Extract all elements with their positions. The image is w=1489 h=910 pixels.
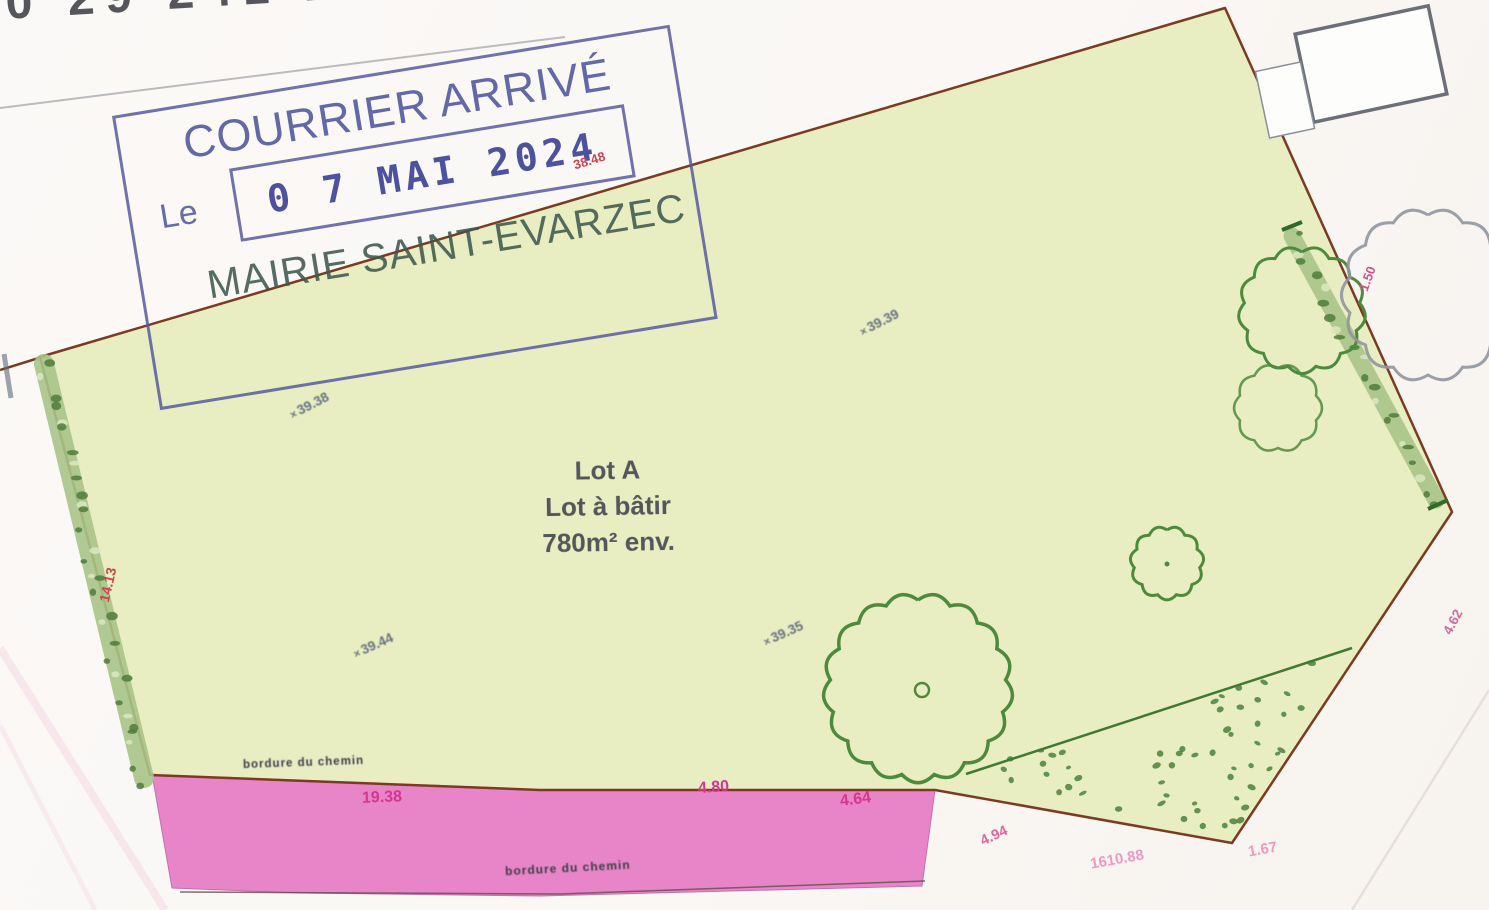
lot-area: 780m² env. [488, 522, 729, 562]
lot-subtitle: Lot à bâtir [488, 486, 729, 526]
road-measurement-2: 4.80 [697, 778, 729, 798]
lot-title: Lot A [487, 450, 728, 490]
edge-mark [4, 354, 11, 398]
road-measurement-1: 19.38 [362, 788, 403, 807]
tree-trunk-icon [1165, 562, 1170, 567]
road-measurement-3: 4.64 [839, 789, 872, 811]
scanned-site-plan: 0 29 241 2 COURRIER ARRIVÉ Le 0 7 MAI 20… [0, 0, 1489, 910]
road-strip [152, 774, 935, 896]
faint-line-bottom-right [1352, 690, 1489, 910]
stamp-le-label: Le [157, 192, 201, 237]
building-outline [1295, 6, 1447, 122]
parcel-label: Lot A Lot à bâtir 780m² env. [487, 450, 729, 562]
pink-streak [0, 725, 95, 910]
